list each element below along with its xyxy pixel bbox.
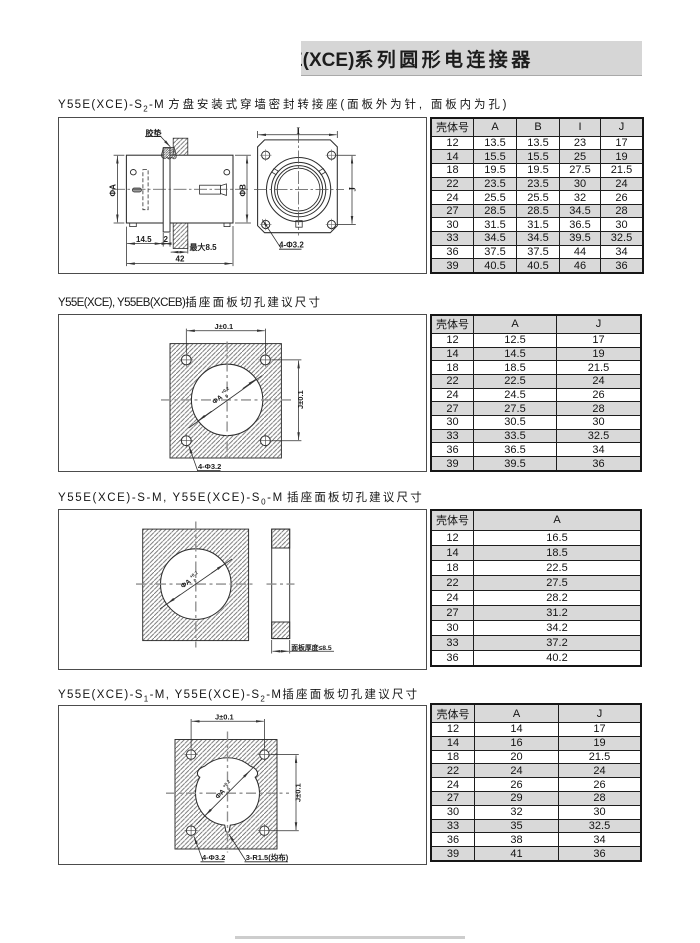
- svg-text:42: 42: [176, 255, 185, 264]
- svg-text:ΦA: ΦA: [109, 184, 118, 197]
- svg-text:4-Φ3.2: 4-Φ3.2: [202, 853, 225, 862]
- svg-text:面板厚度≤8.5: 面板厚度≤8.5: [291, 643, 332, 652]
- svg-text:J±0.1: J±0.1: [215, 713, 234, 722]
- svg-text:4-Φ3.2: 4-Φ3.2: [198, 462, 221, 471]
- svg-text:4-Φ3.2: 4-Φ3.2: [279, 241, 304, 250]
- svg-text:最大8.5: 最大8.5: [190, 242, 218, 252]
- svg-text:J±0.1: J±0.1: [293, 783, 302, 802]
- svg-text:2: 2: [164, 235, 169, 244]
- svg-text:14.5: 14.5: [136, 235, 152, 244]
- svg-text:J: J: [348, 187, 358, 192]
- svg-text:I: I: [297, 126, 301, 136]
- svg-text:ΦB: ΦB: [238, 184, 247, 197]
- svg-text:3-R1.5(均布): 3-R1.5(均布): [246, 852, 289, 862]
- svg-text:胶垫: 胶垫: [146, 128, 162, 138]
- svg-text:J±0.1: J±0.1: [215, 322, 234, 331]
- svg-text:J±0.1: J±0.1: [296, 390, 305, 409]
